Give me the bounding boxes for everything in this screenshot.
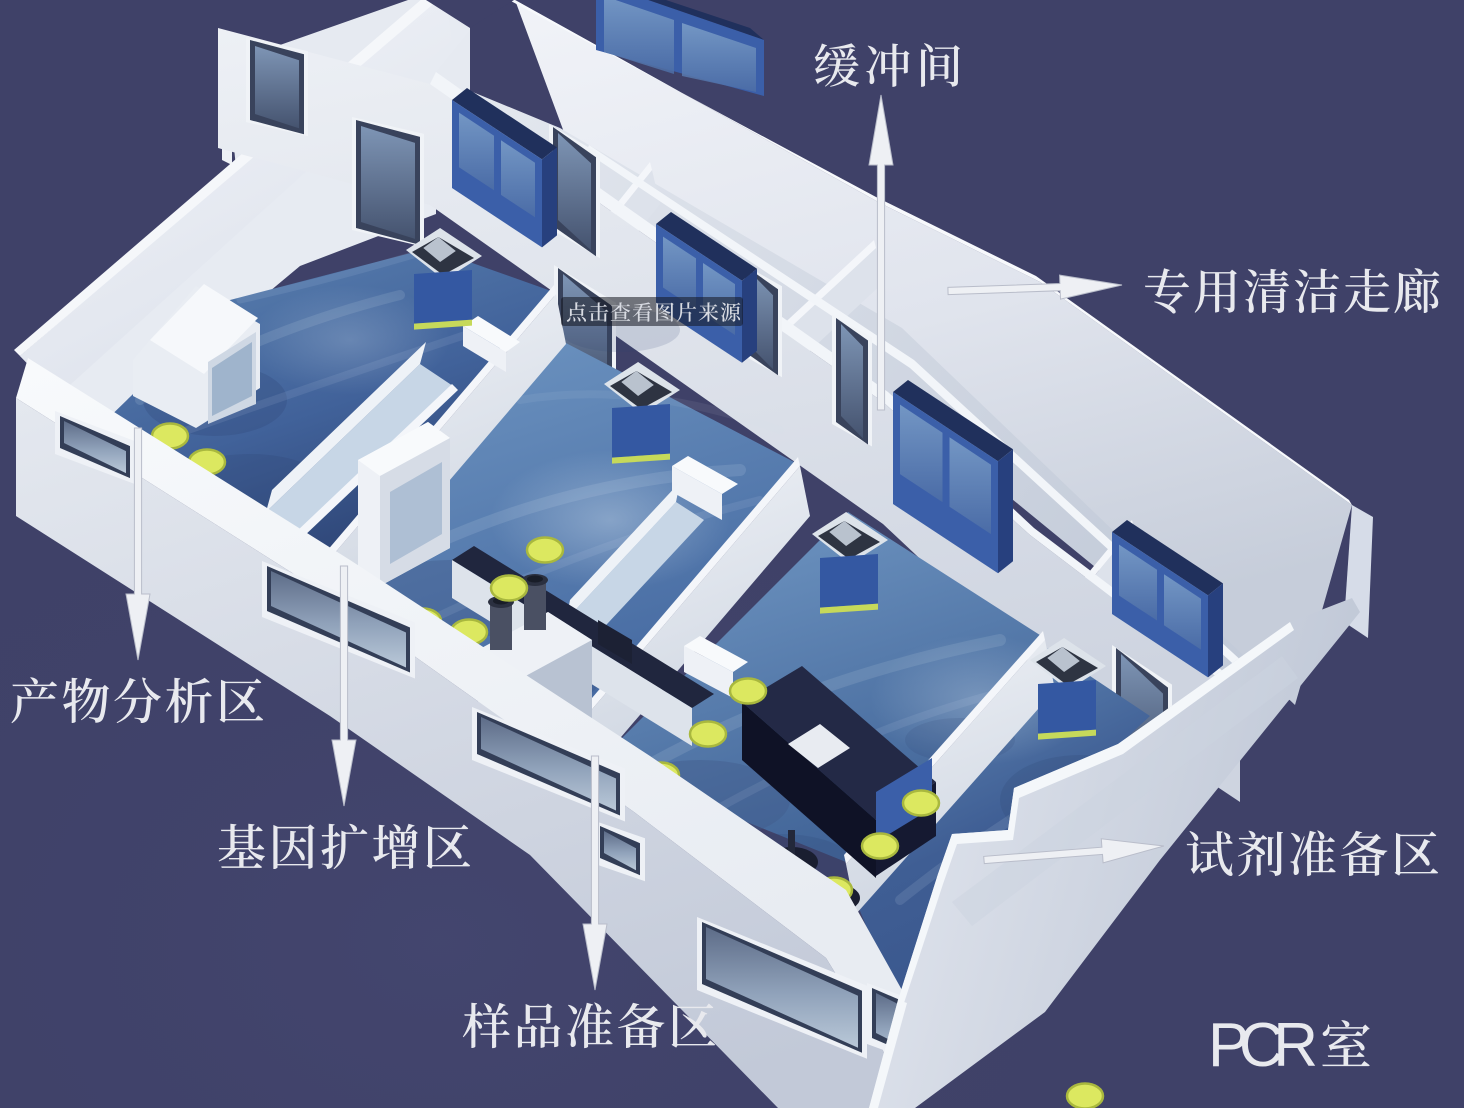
svg-text:PCR: PCR xyxy=(1208,1011,1318,1080)
